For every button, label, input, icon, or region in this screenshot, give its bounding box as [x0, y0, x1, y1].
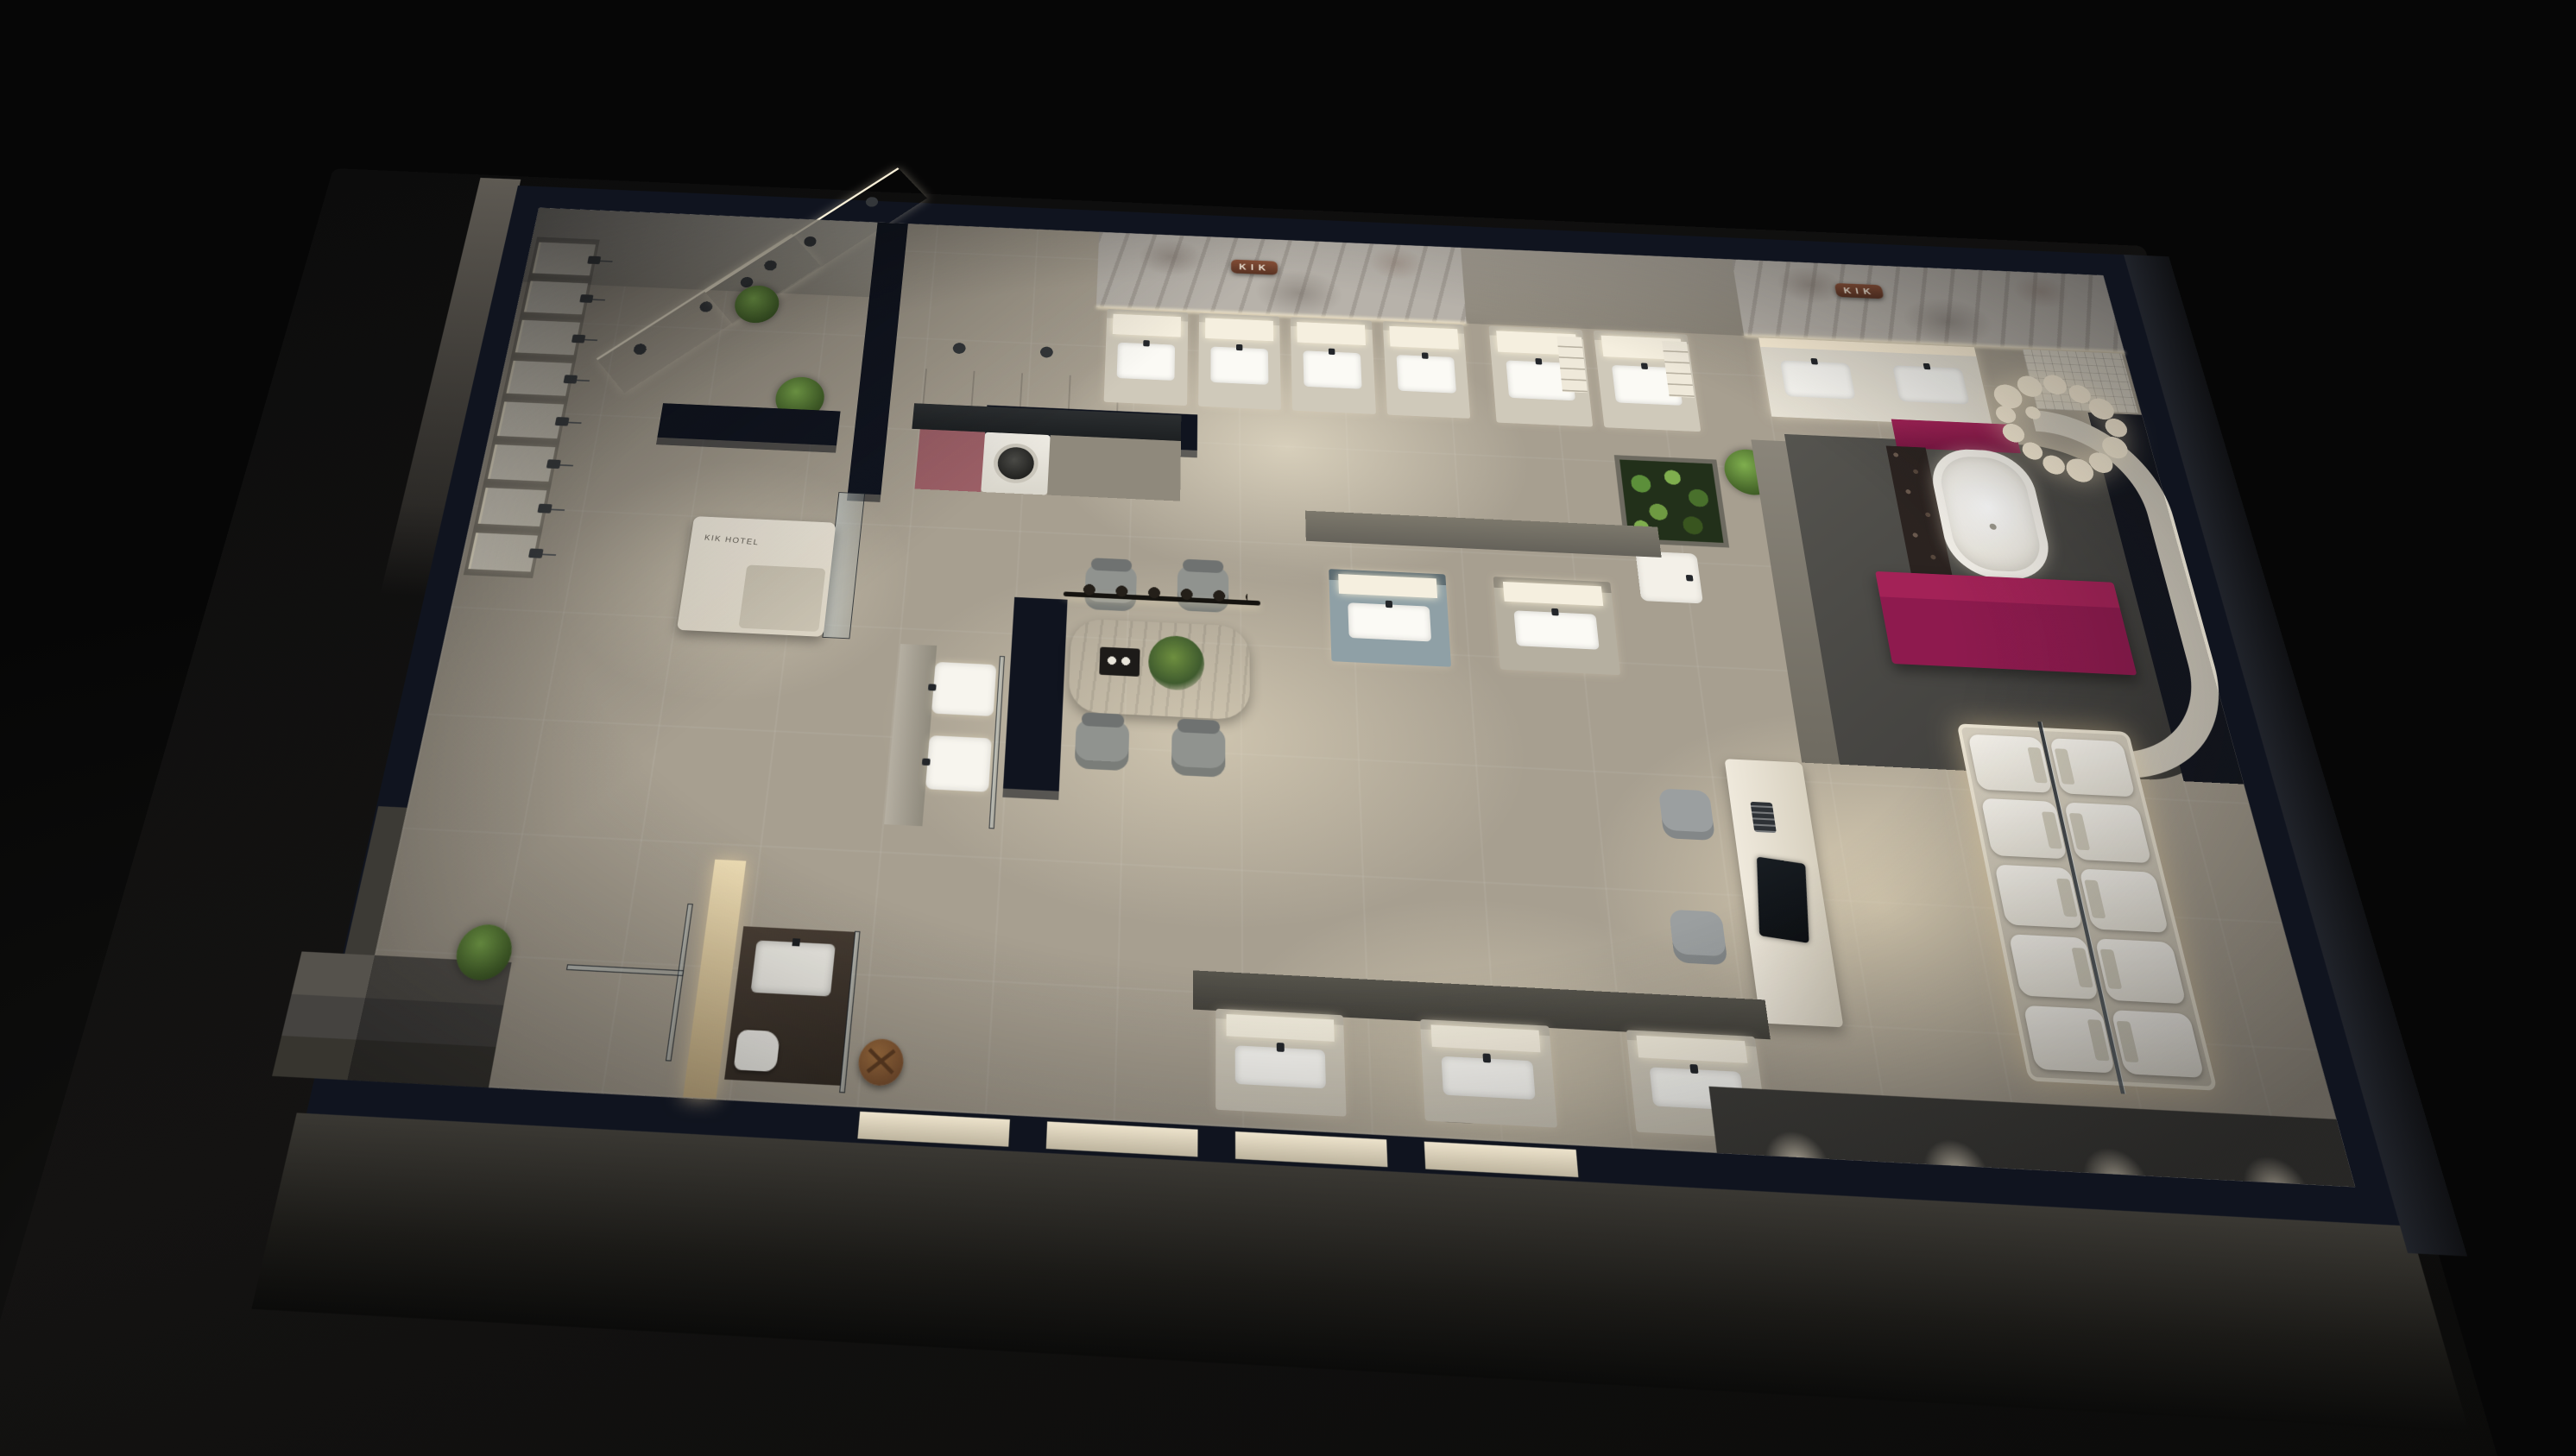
shower-panel: [488, 444, 556, 482]
vanity-unit: [1215, 1009, 1347, 1117]
laundry-cabinet: [914, 429, 985, 492]
shower-panel: [515, 320, 580, 355]
vanity-mirror: [1389, 326, 1459, 350]
consultation-chair: [1658, 788, 1715, 841]
vanity-mirror: [1113, 314, 1181, 337]
reception-counter: KIK HOTEL: [677, 516, 837, 637]
top-vanity-row: [1104, 309, 1471, 419]
vanity-sink: [1304, 350, 1362, 388]
consultation-chair: [1669, 910, 1728, 966]
vanity-unit: [1291, 317, 1376, 414]
towel: [734, 1030, 781, 1072]
vanity-sink: [1892, 365, 1970, 404]
vanity-sink: [1117, 343, 1175, 381]
serving-tray: [1099, 647, 1140, 677]
control-keypad: [1750, 802, 1776, 833]
vanity-sink: [1780, 360, 1856, 399]
display-toilet: [2094, 938, 2187, 1004]
counter-inner-face: [738, 564, 826, 632]
vanity-mirror: [1297, 322, 1366, 345]
vanity-sink: [1513, 610, 1600, 650]
vanity-unit: [1329, 569, 1451, 667]
vanity-sink: [1396, 355, 1455, 393]
vanity-sink: [1506, 361, 1575, 400]
display-toilet: [2064, 803, 2152, 864]
wall-hung-basin: [925, 735, 992, 792]
vanity-mirror: [1430, 1024, 1540, 1052]
vanity-unit: [1493, 577, 1620, 675]
shower-panel: [478, 488, 547, 526]
shower-panel: [533, 243, 596, 275]
wall-hung-basin: [931, 662, 996, 716]
dark-wood-vanity: [724, 926, 856, 1086]
laundry-cabinet: [1047, 435, 1181, 501]
vanity-unit-with-shelves: [1594, 331, 1702, 432]
vanity-mirror: [1637, 1036, 1748, 1063]
vanity-unit: [1198, 313, 1281, 410]
meeting-chair: [1075, 719, 1130, 772]
shelf-vanity-row: [1488, 325, 1701, 432]
vanity-mirror: [1601, 336, 1683, 360]
wall-face-top-middle: [1461, 248, 1744, 336]
shower-panel: [524, 280, 588, 314]
vanity-unit: [1382, 321, 1470, 419]
meeting-chair: [1171, 725, 1226, 778]
vanity-mirror: [1338, 574, 1437, 599]
shower-panel: [497, 401, 564, 438]
mid-vanity-row: [1329, 569, 1620, 675]
display-toilet: [1967, 734, 2052, 793]
vanity-unit-with-shelves: [1488, 325, 1593, 426]
floor-plan-projection: KIK KIK: [306, 186, 2400, 1226]
shower-panel: [506, 360, 571, 395]
display-toilet: [2049, 738, 2136, 797]
display-toilet: [2111, 1010, 2205, 1078]
vanity-mirror: [1503, 582, 1604, 607]
display-toilet: [2079, 869, 2169, 933]
display-toilet: [1994, 865, 2083, 928]
vanity-unit: [1104, 309, 1188, 406]
vanity-sink: [1235, 1045, 1327, 1088]
vanity-sink: [1348, 602, 1432, 641]
showroom-render: KIK KIK: [0, 0, 2576, 1456]
display-toilet: [2009, 934, 2099, 999]
vanity-mirror: [1205, 318, 1273, 341]
vanity-sink: [1442, 1056, 1536, 1100]
vanity-mirror: [1497, 331, 1578, 355]
brand-sign-right: KIK: [1834, 283, 1885, 299]
vanity-unit: [1420, 1019, 1556, 1128]
display-toilet: [1981, 798, 2068, 860]
vanity-sink: [1612, 365, 1683, 405]
freestanding-partition: [1003, 597, 1068, 791]
counter-logo-text: KIK HOTEL: [704, 533, 760, 547]
display-toilet: [2023, 1005, 2115, 1074]
brand-sign-left: KIK: [1231, 260, 1278, 275]
shower-panel: [468, 533, 538, 572]
magenta-display-desk: [1875, 571, 2137, 676]
pedestal-basin: [1635, 551, 1703, 603]
vanity-sink: [750, 940, 835, 996]
washing-machine: [981, 432, 1050, 495]
vanity-sink: [1210, 346, 1268, 384]
double-vanity: [1758, 337, 1992, 426]
vanity-mirror: [1226, 1014, 1334, 1042]
display-screen: [1757, 857, 1809, 943]
